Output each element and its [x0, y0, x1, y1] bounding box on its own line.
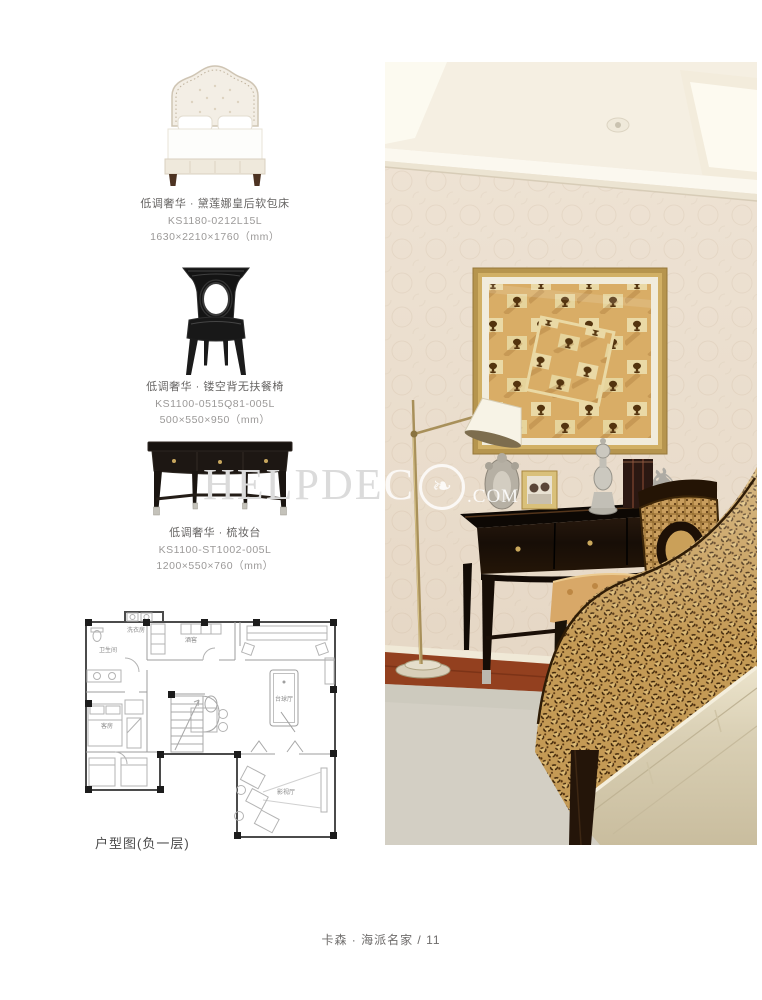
chair-product-image: [176, 262, 256, 378]
bed-product-image: [140, 62, 290, 190]
plan-label-guest: 客房: [101, 722, 113, 730]
plan-stairs: [171, 696, 219, 752]
floor-plan-caption: 户型图(负一层): [95, 833, 190, 852]
plan-label-bath: 卫生间: [99, 646, 117, 654]
table-feet-caps: [154, 503, 287, 515]
table-product-dims: 1200×550×760（mm）: [95, 558, 335, 574]
plan-label-billiards: 台球厅: [275, 695, 293, 703]
floor-plan: 洗衣房 酒窖 卫生间 客房 台球厅 影视厅: [85, 600, 340, 840]
page-footer: 卡森 · 海派名家 / 11: [0, 931, 762, 948]
plan-columns: [85, 619, 337, 839]
plan-label-laundry: 洗衣房: [127, 626, 145, 634]
plan-guest-furniture: [88, 700, 143, 748]
chair-seat: [187, 317, 245, 341]
bed-mattress: [168, 129, 262, 163]
bed-feet: [169, 174, 261, 186]
dressing-table-product-image: [140, 437, 300, 525]
catalog-page: 低调奢华 · 黛莲娜皇后软包床 KS1180-0212L15L 1630×221…: [0, 0, 762, 1000]
bed-product-model: KS1180-0212L15L: [95, 213, 335, 229]
chair-product-name: 低调奢华 · 镂空背无扶餐椅: [95, 379, 335, 396]
plan-theater-furniture: [235, 741, 328, 833]
chair-legs: [186, 338, 246, 375]
bed-product-name: 低调奢华 · 黛莲娜皇后软包床: [95, 196, 335, 213]
chair-product-dims: 500×550×950（mm）: [95, 412, 335, 428]
chair-oval-cutout: [203, 283, 229, 315]
plan-label-theater: 影视厅: [277, 788, 295, 796]
plan-label-cellar: 酒窖: [185, 636, 197, 644]
plan-bath-fixtures: [87, 628, 139, 682]
photo-frame: [522, 471, 557, 509]
table-product-model: KS1100-ST1002-005L: [95, 542, 335, 558]
table-legs: [154, 471, 286, 515]
chair-product-info: 低调奢华 · 镂空背无扶餐椅 KS1100-0515Q81-005L 500×5…: [95, 379, 335, 428]
bedroom-photo: ♞: [385, 62, 757, 845]
table-product-name: 低调奢华 · 梳妆台: [95, 525, 335, 542]
table-product-info: 低调奢华 · 梳妆台 KS1100-ST1002-005L 1200×550×7…: [95, 525, 335, 574]
bed-product-dims: 1630×2210×1760（mm）: [95, 229, 335, 245]
table-top: [148, 442, 292, 451]
plan-twin-beds: [89, 752, 147, 786]
table-stretcher: [156, 495, 284, 499]
bed-product-info: 低调奢华 · 黛莲娜皇后软包床 KS1180-0212L15L 1630×221…: [95, 196, 335, 245]
chair-product-model: KS1100-0515Q81-005L: [95, 396, 335, 412]
